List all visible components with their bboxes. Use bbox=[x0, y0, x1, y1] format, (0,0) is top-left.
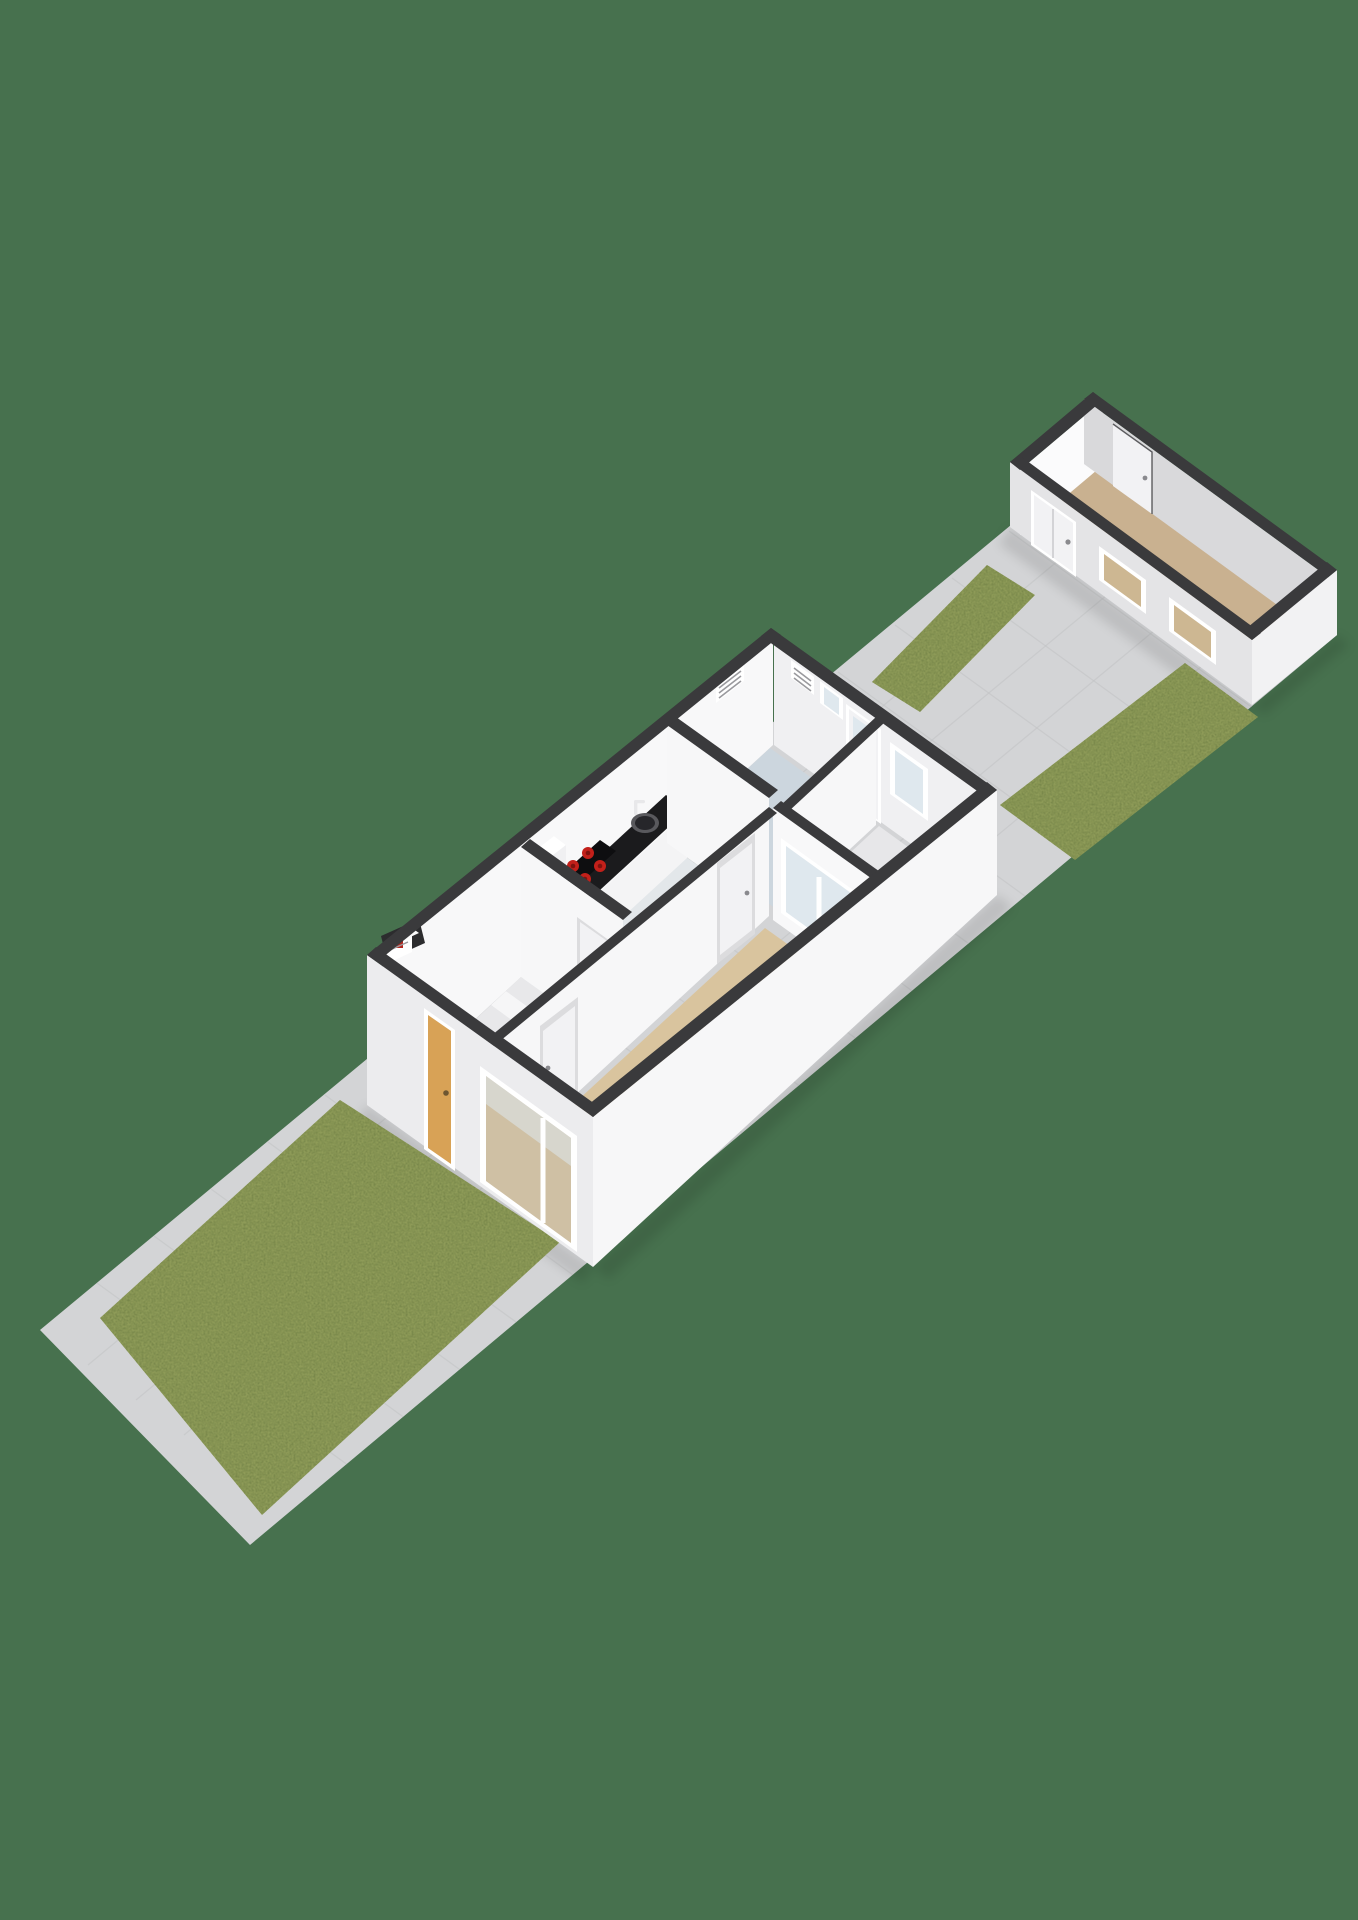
shed-inner-door-handle bbox=[1143, 476, 1148, 481]
shed-door-handle bbox=[1065, 539, 1070, 544]
floorplan-canvas: 3D isometric cutaway floor plan of a nar… bbox=[0, 0, 1358, 1920]
house bbox=[367, 628, 997, 1267]
front-door bbox=[424, 1008, 455, 1171]
front-door-handle bbox=[443, 1090, 449, 1096]
